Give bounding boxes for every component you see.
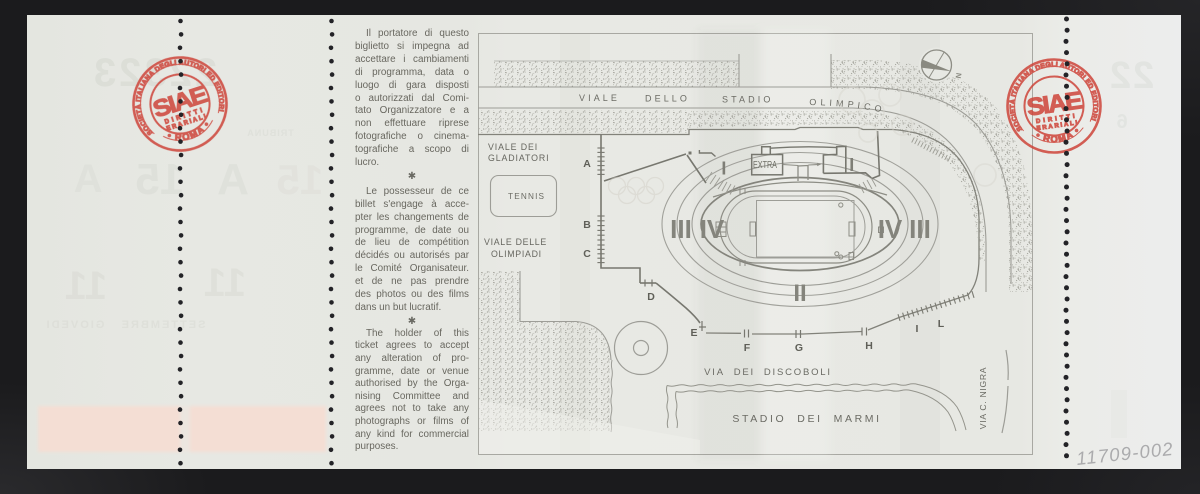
- svg-text:15: 15: [136, 155, 185, 204]
- svg-text:F: F: [744, 342, 751, 354]
- svg-text:15: 15: [277, 156, 324, 203]
- svg-text:IV: IV: [700, 214, 725, 244]
- svg-text:VIALE DELLE: VIALE DELLE: [484, 237, 547, 247]
- svg-text:I: I: [849, 155, 854, 175]
- svg-text:III: III: [909, 214, 931, 244]
- svg-text:11: 11: [204, 261, 246, 305]
- svg-text:L: L: [938, 318, 945, 330]
- svg-text:GLADIATORI: GLADIATORI: [488, 153, 549, 163]
- svg-text:STADIO DEI MARMI: STADIO DEI MARMI: [732, 413, 881, 425]
- svg-text:OLIMPIADI: OLIMPIADI: [491, 249, 542, 259]
- svg-text:C: C: [583, 248, 591, 260]
- svg-text:H: H: [865, 340, 873, 352]
- svg-text:TRIBUNA: TRIBUNA: [246, 128, 294, 138]
- svg-text:I: I: [721, 159, 726, 179]
- svg-text:VIA DEI DISCOBOLI: VIA DEI DISCOBOLI: [704, 367, 832, 378]
- svg-text:11709-002: 11709-002: [1075, 438, 1175, 469]
- svg-text:E: E: [690, 327, 697, 339]
- svg-text:A: A: [583, 158, 591, 170]
- svg-text:G: G: [795, 342, 803, 354]
- svg-text:II: II: [793, 280, 806, 307]
- svg-text:DELLO: DELLO: [645, 94, 690, 104]
- svg-text:IV: IV: [878, 214, 903, 244]
- svg-text:VIALE: VIALE: [579, 93, 620, 103]
- svg-text:6: 6: [1116, 111, 1127, 133]
- svg-text:VIALE DEI: VIALE DEI: [488, 142, 538, 152]
- svg-text:A: A: [217, 155, 249, 204]
- svg-text:STADIO: STADIO: [722, 95, 773, 105]
- svg-text:11: 11: [65, 264, 107, 308]
- svg-text:VIA C. NIGRA: VIA C. NIGRA: [978, 367, 988, 429]
- svg-text:I: I: [916, 323, 919, 335]
- svg-text:22: 22: [1108, 55, 1154, 97]
- svg-text:III: III: [670, 214, 692, 244]
- svg-text:B: B: [583, 219, 591, 231]
- svg-text:EXTRA: EXTRA: [753, 159, 777, 170]
- svg-text:TENNIS: TENNIS: [508, 192, 545, 201]
- svg-text:A: A: [74, 157, 103, 201]
- svg-text:D: D: [647, 291, 655, 303]
